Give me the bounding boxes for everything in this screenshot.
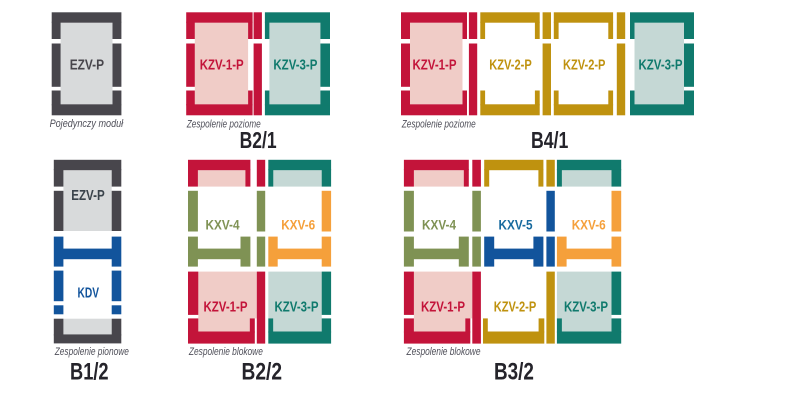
svg-text:B1/2: B1/2	[70, 359, 109, 386]
svg-text:KZV-3-P: KZV-3-P	[273, 57, 317, 73]
svg-text:KZV-1-P: KZV-1-P	[421, 300, 465, 316]
svg-text:KXV-6: KXV-6	[281, 217, 315, 233]
svg-text:KZV-2-P: KZV-2-P	[489, 57, 532, 73]
svg-text:KZV-3-P: KZV-3-P	[564, 300, 608, 316]
svg-text:Zespolenie poziome: Zespolenie poziome	[401, 118, 476, 130]
svg-text:Zespolenie pionowe: Zespolenie pionowe	[54, 346, 129, 358]
svg-text:KZV-1-P: KZV-1-P	[413, 57, 457, 73]
svg-text:B2/1: B2/1	[240, 127, 277, 153]
svg-text:B4/1: B4/1	[531, 127, 568, 153]
svg-text:B3/2: B3/2	[494, 359, 534, 386]
svg-text:EZV-P: EZV-P	[71, 188, 105, 204]
svg-text:B2/2: B2/2	[242, 359, 283, 386]
svg-text:KDV: KDV	[78, 286, 100, 302]
svg-text:KZV-3-P: KZV-3-P	[639, 57, 683, 73]
svg-text:KXV-5: KXV-5	[499, 217, 533, 233]
svg-text:KZV-2-P: KZV-2-P	[563, 57, 606, 73]
svg-text:KZV-2-P: KZV-2-P	[494, 300, 537, 316]
svg-text:EZV-P: EZV-P	[70, 57, 105, 73]
svg-text:KXV-6: KXV-6	[572, 217, 606, 233]
svg-text:KZV-1-P: KZV-1-P	[200, 57, 244, 73]
svg-text:KXV-4: KXV-4	[206, 217, 240, 233]
svg-text:Pojedynczy moduł: Pojedynczy moduł	[50, 118, 124, 130]
svg-text:Zespolenie blokowe: Zespolenie blokowe	[188, 346, 263, 358]
svg-text:KZV-1-P: KZV-1-P	[204, 300, 248, 316]
svg-text:Zespolenie blokowe: Zespolenie blokowe	[406, 346, 481, 358]
svg-text:KXV-4: KXV-4	[422, 217, 456, 233]
svg-text:KZV-3-P: KZV-3-P	[275, 300, 319, 316]
